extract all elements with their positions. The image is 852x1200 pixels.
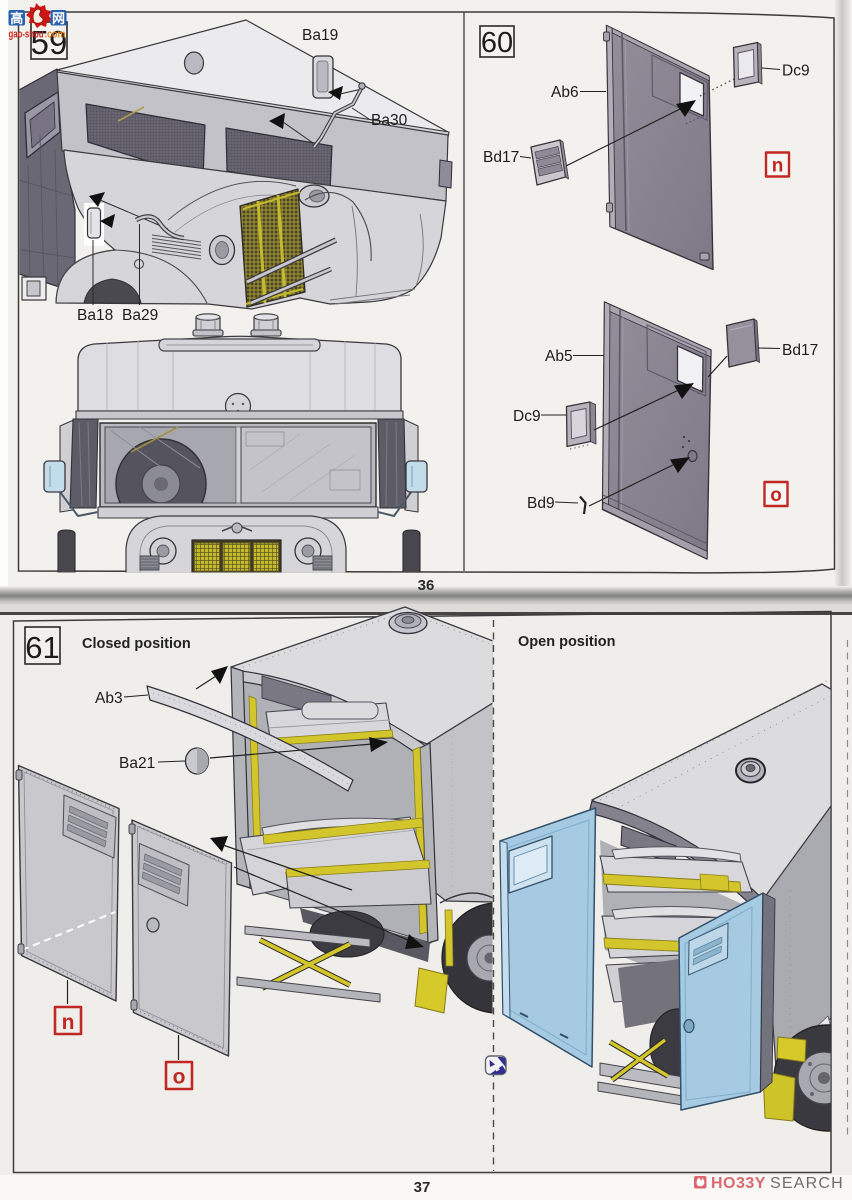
svg-text:Ab5: Ab5 [545, 348, 573, 365]
svg-text:Ba19: Ba19 [302, 27, 338, 44]
svg-text:36: 36 [418, 577, 435, 594]
svg-text:Ba29: Ba29 [122, 307, 158, 324]
svg-text:37: 37 [414, 1179, 431, 1196]
svg-text:SEARCH: SEARCH [770, 1175, 844, 1192]
svg-text:Ab6: Ab6 [551, 84, 579, 101]
svg-text:.com: .com [45, 29, 66, 41]
svg-text:高: 高 [10, 11, 23, 26]
svg-text:Bd17: Bd17 [782, 342, 818, 359]
svg-text:Closed position: Closed position [82, 636, 191, 652]
svg-text:Bd17: Bd17 [483, 149, 519, 166]
svg-text:Ab3: Ab3 [95, 690, 123, 707]
svg-text:Ba21: Ba21 [119, 755, 155, 772]
svg-text:n: n [62, 1011, 75, 1034]
svg-text:网: 网 [52, 11, 65, 26]
svg-text:Ba18: Ba18 [77, 307, 113, 324]
svg-text:60: 60 [481, 27, 513, 59]
svg-text:Dc9: Dc9 [782, 63, 810, 80]
svg-text:Bd9: Bd9 [527, 495, 555, 512]
svg-text:o: o [770, 485, 782, 506]
svg-text:o: o [173, 1066, 186, 1089]
svg-text:HO33Y: HO33Y [711, 1175, 766, 1192]
svg-text:Ba30: Ba30 [371, 112, 408, 129]
svg-text:gao-shou: gao-shou [9, 29, 44, 41]
svg-text:Open position: Open position [518, 634, 615, 650]
svg-text:n: n [772, 156, 784, 177]
svg-text:Dc9: Dc9 [513, 408, 541, 425]
svg-text:61: 61 [25, 630, 59, 665]
